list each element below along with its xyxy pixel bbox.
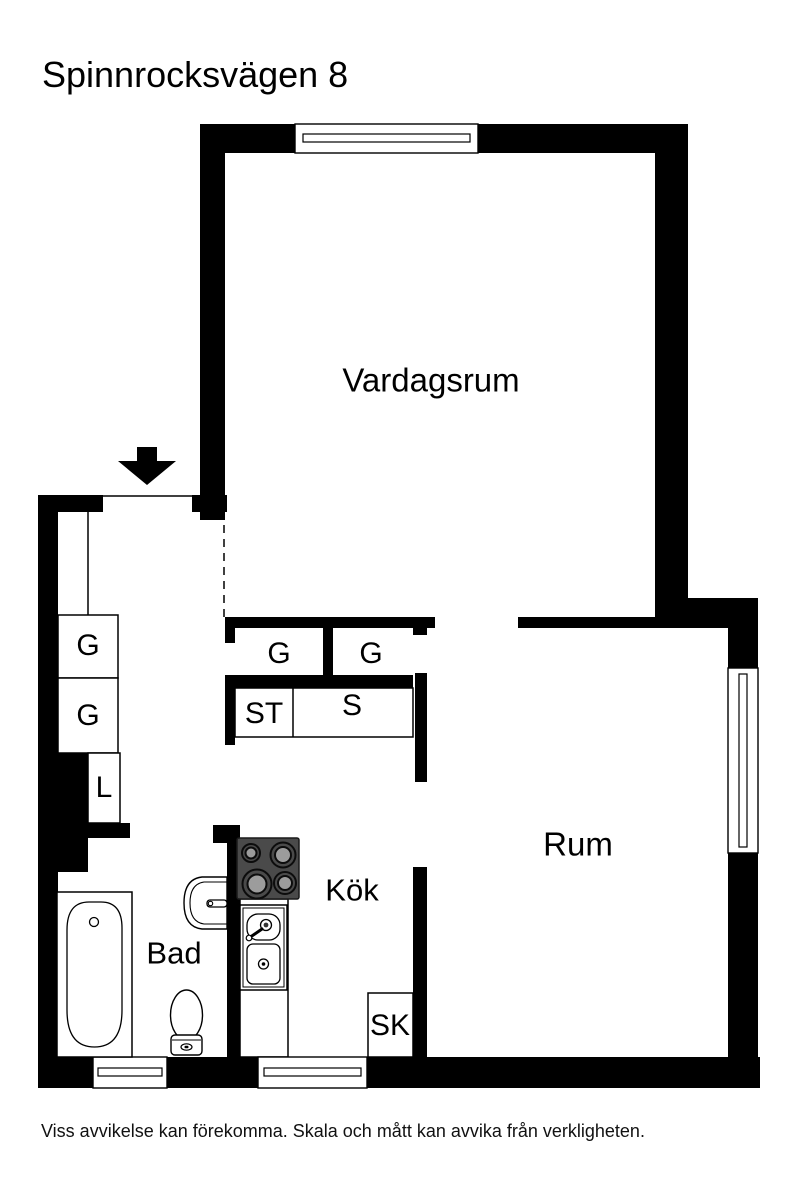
stove-icon [237,838,299,899]
room-label-living-room: Vardagsrum [342,364,519,397]
toilet-icon [171,990,203,1055]
window-icon [728,668,758,853]
closet-label-mid-wardrobe-2: G [359,639,382,669]
window-icon [295,124,478,153]
washbasin-icon [184,877,227,929]
closet-label-hall-wardrobe-1: G [76,631,99,661]
kitchen-sink-icon [240,905,287,990]
closet-label-linen: L [96,773,113,803]
room-label-bedroom: Rum [543,828,613,861]
closet-label-hall-wardrobe-2: G [76,701,99,731]
closet-label-shelf: S [342,691,362,721]
closet-label-kitchen-closet: SK [370,1011,410,1041]
room-label-bathroom: Bad [146,938,201,969]
bathtub-icon [57,892,132,1057]
room-label-kitchen: Kök [325,875,378,906]
floorplan-page: Spinnrocksvägen 8 [0,0,800,1203]
disclaimer-text: Viss avvikelse kan förekomma. Skala och … [41,1121,645,1142]
window-icon [93,1057,167,1088]
door-opening-lines [88,496,192,615]
closet-label-mid-wardrobe-1: G [267,639,290,669]
entrance-arrow-icon [118,447,176,485]
closet-label-cleaning: ST [245,699,283,729]
window-icon [258,1057,367,1088]
